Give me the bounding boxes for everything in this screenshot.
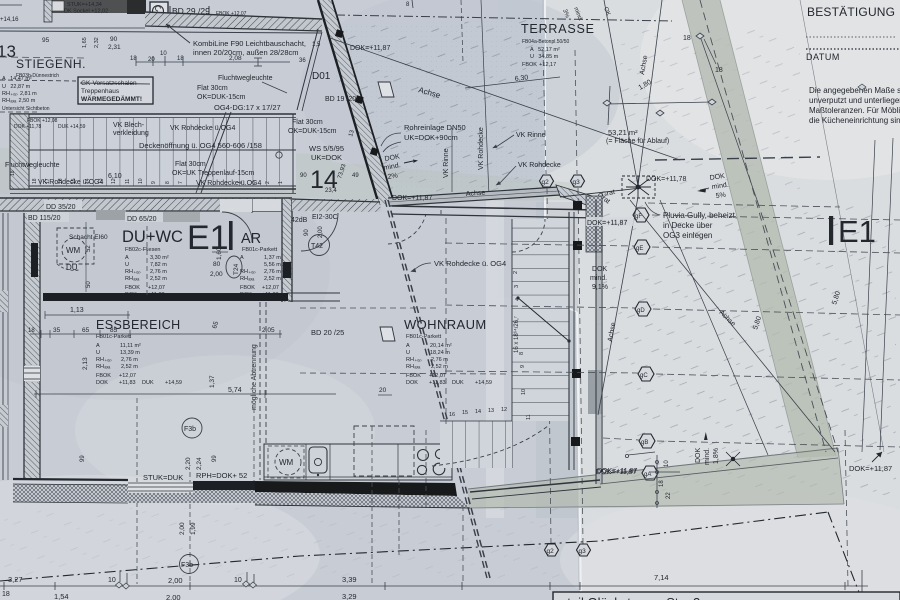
svg-text:gD: gD [637,308,645,314]
svg-text:mögliche Abtrennung: mögliche Abtrennung [251,344,258,410]
svg-text:95: 95 [42,37,50,44]
svg-text:STUK=+14,34: STUK=+14,34 [67,2,102,8]
svg-text:50: 50 [86,281,92,288]
svg-text:2,24: 2,24 [196,457,203,470]
svg-text:VK Rohdecke ü. OG4: VK Rohdecke ü. OG4 [434,259,506,268]
svg-text:RH ₐₓₐ 2,50 m: RH ₐₓₐ 2,50 m [2,98,36,104]
svg-text:90: 90 [110,36,118,43]
svg-text:65: 65 [82,327,90,334]
svg-text:FBOK: FBOK [240,285,255,291]
svg-text:ESSBEREICH: ESSBEREICH [96,318,181,332]
svg-text:BD 115/20: BD 115/20 [28,215,61,222]
svg-text:RH ₐₓₐ: RH ₐₓₐ [240,276,255,282]
svg-text:DOK=+11,87: DOK=+11,87 [597,468,637,475]
svg-text:FBOK +12,17: FBOK +12,17 [522,62,556,68]
svg-text:unverputzt und unterliegen: unverputzt und unterliegen [809,96,900,105]
svg-text:gF: gF [635,214,642,220]
svg-text:T24: T24 [233,263,240,275]
svg-text:10: 10 [521,389,527,395]
svg-text:DOK=+11,87: DOK=+11,87 [392,195,432,202]
svg-text:+12,07: +12,07 [119,373,136,379]
svg-text:99: 99 [212,455,218,462]
svg-text:gC: gC [640,373,648,379]
svg-text:FBOK: FBOK [125,285,140,291]
svg-text:innen 20/20cm, außen 28/28cm: innen 20/20cm, außen 28/28cm [193,48,298,57]
svg-text:18: 18 [32,178,38,184]
svg-text:EI2-30C: EI2-30C [312,214,338,221]
svg-text:2,08: 2,08 [229,55,242,62]
svg-text:52: 52 [86,245,92,252]
svg-text:Fluchtwegleuchte: Fluchtwegleuchte [5,162,60,169]
svg-text:1,5: 1,5 [312,42,321,48]
svg-text:1: 1 [278,181,284,184]
svg-text:1,37 m: 1,37 m [264,255,281,261]
svg-text:16: 16 [449,412,455,418]
svg-text:DOK: DOK [592,266,608,273]
svg-text:verkleidung: verkleidung [113,130,149,137]
svg-text:2,00: 2,00 [166,593,181,600]
svg-text:UK=DOK: UK=DOK [311,153,342,162]
svg-text:99: 99 [80,455,86,462]
svg-text:Flat 30cm: Flat 30cm [292,119,323,126]
svg-text:DD 65/20: DD 65/20 [127,216,157,223]
svg-text:D01: D01 [312,71,331,82]
svg-text:gE: gE [636,246,643,252]
svg-text:12: 12 [501,407,507,413]
svg-text:7,82 m: 7,82 m [150,262,167,268]
svg-text:2,00: 2,00 [168,576,183,585]
svg-text:12: 12 [111,178,117,184]
svg-text:VK Rohdecke ü.OG4: VK Rohdecke ü.OG4 [170,125,235,132]
svg-text:18: 18 [2,591,10,598]
svg-text:1,65: 1,65 [82,37,88,48]
svg-text:13: 13 [0,42,16,61]
svg-text:DOK: DOK [406,380,418,386]
svg-text:KombiLine F90 Leichtbauschacht: KombiLine F90 Leichtbauschacht, [193,39,306,48]
svg-text:Untersicht Sichtbeton: Untersicht Sichtbeton [2,106,50,112]
svg-text:FBOK: FBOK [96,373,111,379]
svg-text:DOK: DOK [695,448,702,464]
svg-text:2,76 m: 2,76 m [150,269,167,275]
svg-text:RH ₐₓₐ: RH ₐₓₐ [406,364,421,370]
svg-text:3,29: 3,29 [342,592,357,600]
svg-text:DU+WC: DU+WC [122,228,183,246]
svg-text:A: A [125,255,129,261]
svg-text:Fluchtwegleuchte: Fluchtwegleuchte [218,75,273,82]
svg-text:1,54: 1,54 [54,592,69,600]
svg-text:g2: g2 [542,179,550,186]
svg-text:FB04a-Betonpl.50/50: FB04a-Betonpl.50/50 [522,39,569,45]
svg-text:13,39 m: 13,39 m [120,350,140,356]
svg-text:DK Sockel +12,02: DK Sockel +12,02 [64,9,108,15]
svg-text:1,37: 1,37 [209,375,216,388]
svg-text:FB02c-Fliesen: FB02c-Fliesen [125,247,160,253]
svg-text:80: 80 [213,261,221,268]
svg-text:DOK=+11,87: DOK=+11,87 [587,220,627,227]
svg-text:2,00: 2,00 [179,522,186,535]
svg-text:15: 15 [462,410,468,416]
svg-text:13: 13 [98,178,104,184]
svg-text:BD 20 /25: BD 20 /25 [311,328,344,337]
svg-text:10: 10 [138,178,144,184]
svg-text:A: A [406,343,410,349]
svg-text:DUK: DUK [452,380,464,386]
svg-text:nteil Glückstrasse Stg. 2: nteil Glückstrasse Stg. 2 [560,595,700,600]
svg-text:RH ₊ₒₚ 2,81 m: RH ₊ₒₚ 2,81 m [2,91,37,97]
svg-text:18: 18 [659,480,665,487]
svg-text:4: 4 [515,298,521,301]
svg-text:Flat 30cm: Flat 30cm [197,85,228,92]
svg-text:2,00: 2,00 [318,226,324,238]
svg-text:DD 35/20: DD 35/20 [46,204,76,211]
svg-text:2,05: 2,05 [262,327,275,334]
svg-text:DOK: DOK [96,380,108,386]
svg-text:g2: g2 [547,548,555,555]
svg-text:g3: g3 [573,179,581,186]
svg-text:2,52 m: 2,52 m [121,364,138,370]
svg-text:5,74: 5,74 [228,387,242,394]
svg-text:2,20: 2,20 [185,457,192,470]
svg-text:A: A [96,343,100,349]
svg-text:9,1%: 9,1% [592,284,608,291]
svg-text:3,30 m²: 3,30 m² [150,255,169,261]
svg-text:22: 22 [666,492,672,499]
svg-text:2: 2 [513,271,519,274]
svg-text:DOK +11,78: DOK +11,78 [14,124,42,130]
svg-text:UK=DOK+90cm: UK=DOK+90cm [404,133,458,142]
svg-text:DUK: DUK [142,380,154,386]
svg-text:DOK=+11,78: DOK=+11,78 [646,176,686,183]
svg-text:2,76 m: 2,76 m [264,269,281,275]
svg-text:RH ₊ₒₚ: RH ₊ₒₚ [96,357,112,363]
svg-text:2,76 m: 2,76 m [121,357,138,363]
svg-text:11: 11 [526,414,532,420]
svg-text:F3b: F3b [184,426,196,433]
svg-text:OG3 einlegen: OG3 einlegen [663,231,712,240]
svg-text:Rohreinlage DN50: Rohreinlage DN50 [404,123,466,132]
svg-text:U 34,85 m: U 34,85 m [530,54,559,60]
svg-text:Die angegebenen Maße sin: Die angegebenen Maße sin [809,86,900,95]
svg-text:WM: WM [279,458,294,467]
svg-text:18: 18 [683,35,691,42]
svg-text:VK Rohdecke: VK Rohdecke [518,162,561,169]
svg-text:Treppenhaus: Treppenhaus [81,88,120,95]
svg-text:mind.: mind. [704,448,711,465]
svg-text:18: 18 [10,170,16,176]
svg-text:7: 7 [178,181,184,184]
svg-text:7,14: 7,14 [654,573,669,582]
svg-text:RPH=DOK+ 52: RPH=DOK+ 52 [196,471,247,480]
svg-text:OK=DUK-15cm: OK=DUK-15cm [197,94,246,101]
svg-text:+14,16: +14,16 [0,17,19,23]
svg-text:VK Rohdecke: VK Rohdecke [478,127,485,170]
svg-text:42dB: 42dB [291,217,308,224]
svg-text:90: 90 [304,229,310,236]
svg-text:14: 14 [85,178,91,184]
svg-text:16: 16 [58,178,64,184]
svg-text:3,39: 3,39 [342,575,357,584]
svg-text:9: 9 [151,181,157,184]
svg-text:mind.: mind. [590,275,607,282]
svg-text:18,24 m: 18,24 m [430,350,450,356]
svg-text:WÄRMEGEDÄMMT!: WÄRMEGEDÄMMT! [81,95,142,103]
svg-text:53,21 m²: 53,21 m² [608,128,638,137]
svg-text:2,13: 2,13 [82,357,89,370]
svg-text:9: 9 [520,365,526,368]
svg-text:RH ₐₓₐ: RH ₐₓₐ [125,276,140,282]
svg-text:Deckenöffnung ü. OG4 560-606 /: Deckenöffnung ü. OG4 560-606 /158 [139,141,262,150]
svg-text:2,52 m: 2,52 m [150,276,167,282]
svg-text:14: 14 [475,409,481,415]
svg-text:10: 10 [234,577,242,584]
svg-text:23,4: 23,4 [325,188,337,194]
svg-text:OK=UK Treppenlauf-15cm: OK=UK Treppenlauf-15cm [172,170,254,177]
svg-text:90: 90 [300,173,307,179]
svg-text:RH ₐₓₐ: RH ₐₓₐ [96,364,111,370]
svg-text:11,11 m²: 11,11 m² [120,343,141,349]
svg-text:VK Rinne: VK Rinne [443,148,450,178]
svg-text:U: U [96,350,100,356]
svg-text:E1: E1 [838,214,876,249]
svg-text:+12,07: +12,07 [148,285,165,291]
svg-text:gB: gB [641,440,648,446]
svg-text:4: 4 [238,181,244,184]
svg-text:10: 10 [664,460,670,467]
svg-text:10: 10 [108,577,116,584]
svg-text:FB01c-Parkett: FB01c-Parkett [96,334,132,340]
svg-text:2,32: 2,32 [94,37,100,48]
svg-text:BD 19 /20: BD 19 /20 [325,96,356,103]
svg-text:8: 8 [165,181,171,184]
svg-text:36: 36 [299,58,306,64]
svg-text:DOK=+11,87: DOK=+11,87 [849,464,892,473]
svg-text:FB01c-Parkett: FB01c-Parkett [406,334,442,340]
svg-text:g3: g3 [579,548,587,555]
svg-text:U: U [406,350,410,356]
svg-text:Maßtoleranzen. Für Möblie: Maßtoleranzen. Für Möblie [809,106,900,115]
svg-text:1,8%: 1,8% [713,448,720,464]
svg-text:RH ₊ₒₚ: RH ₊ₒₚ [406,357,422,363]
svg-text:Flat 30cm: Flat 30cm [175,161,206,168]
svg-text:STIEGENH.: STIEGENH. [16,57,86,71]
svg-text:U: U [125,262,129,268]
svg-text:1,60: 1,60 [216,247,223,260]
svg-text:FB01c-Parkett: FB01c-Parkett [242,247,278,253]
svg-text:(= Fläche für Ablauf): (= Fläche für Ablauf) [606,138,669,145]
svg-text:20,14 m²: 20,14 m² [430,343,452,349]
svg-text:A 14,47 m²: A 14,47 m² [2,76,32,82]
svg-text:TERRASSE: TERRASSE [521,22,595,36]
svg-text:2: 2 [265,181,271,184]
svg-text:49: 49 [352,173,359,179]
svg-text:U 22,87 m: U 22,87 m [2,84,31,90]
svg-text:RH ₊ₒₚ: RH ₊ₒₚ [240,269,256,275]
svg-text:1,13: 1,13 [70,307,84,314]
svg-text:10: 10 [160,51,167,57]
svg-text:gA: gA [644,472,651,478]
svg-text:2,31: 2,31 [108,44,121,51]
svg-text:13: 13 [488,408,494,414]
svg-text:17: 17 [45,178,51,184]
svg-text:2,52 m: 2,52 m [264,276,281,282]
svg-text:+11,83: +11,83 [119,380,136,386]
svg-text:RH ₊ₒₚ: RH ₊ₒₚ [125,269,141,275]
svg-text:1,99: 1,99 [190,522,197,535]
svg-text:16 x 18⁶⁴/26,⁷: 16 x 18⁶⁴/26,⁷ [513,316,520,353]
svg-text:5%: 5% [715,192,726,200]
svg-text:F3b: F3b [181,562,193,569]
svg-text:Achse: Achse [466,190,486,198]
svg-text:DUK +14,59: DUK +14,59 [58,124,86,130]
svg-text:WS 5/5/95: WS 5/5/95 [309,144,344,153]
svg-text:+14,59: +14,59 [165,380,182,386]
svg-text:OG4-DG:17 x 17/27: OG4-DG:17 x 17/27 [214,103,281,112]
svg-text:85: 85 [110,327,118,334]
svg-text:2,00: 2,00 [210,271,223,278]
svg-text:WM: WM [66,246,81,255]
svg-text:+14,59: +14,59 [475,380,492,386]
svg-text:A 52,17 m²: A 52,17 m² [530,47,560,53]
svg-text:WOHNRAUM: WOHNRAUM [404,317,487,332]
svg-text:DOK=+11,87: DOK=+11,87 [350,45,390,52]
svg-text:VK Rinne: VK Rinne [516,132,546,139]
svg-text:OK=DUK-15cm: OK=DUK-15cm [288,128,337,135]
svg-text:5,56 m: 5,56 m [264,262,281,268]
svg-text:11: 11 [125,179,131,184]
svg-text:3: 3 [251,181,257,184]
svg-text:35: 35 [53,327,61,334]
svg-text:3: 3 [514,285,520,288]
svg-text:15: 15 [71,178,77,184]
svg-text:20: 20 [379,387,387,394]
svg-text:VK Blech-: VK Blech- [113,122,145,129]
svg-text:BESTÄTIGUNG: BESTÄTIGUNG [807,5,895,19]
svg-text:3,27: 3,27 [8,575,23,584]
svg-text:18: 18 [28,328,35,334]
svg-text:STUK=DUK: STUK=DUK [143,473,183,482]
svg-text:+12,07: +12,07 [262,285,279,291]
svg-text:8: 8 [519,352,525,355]
svg-text:Schacht EI60: Schacht EI60 [69,234,108,241]
